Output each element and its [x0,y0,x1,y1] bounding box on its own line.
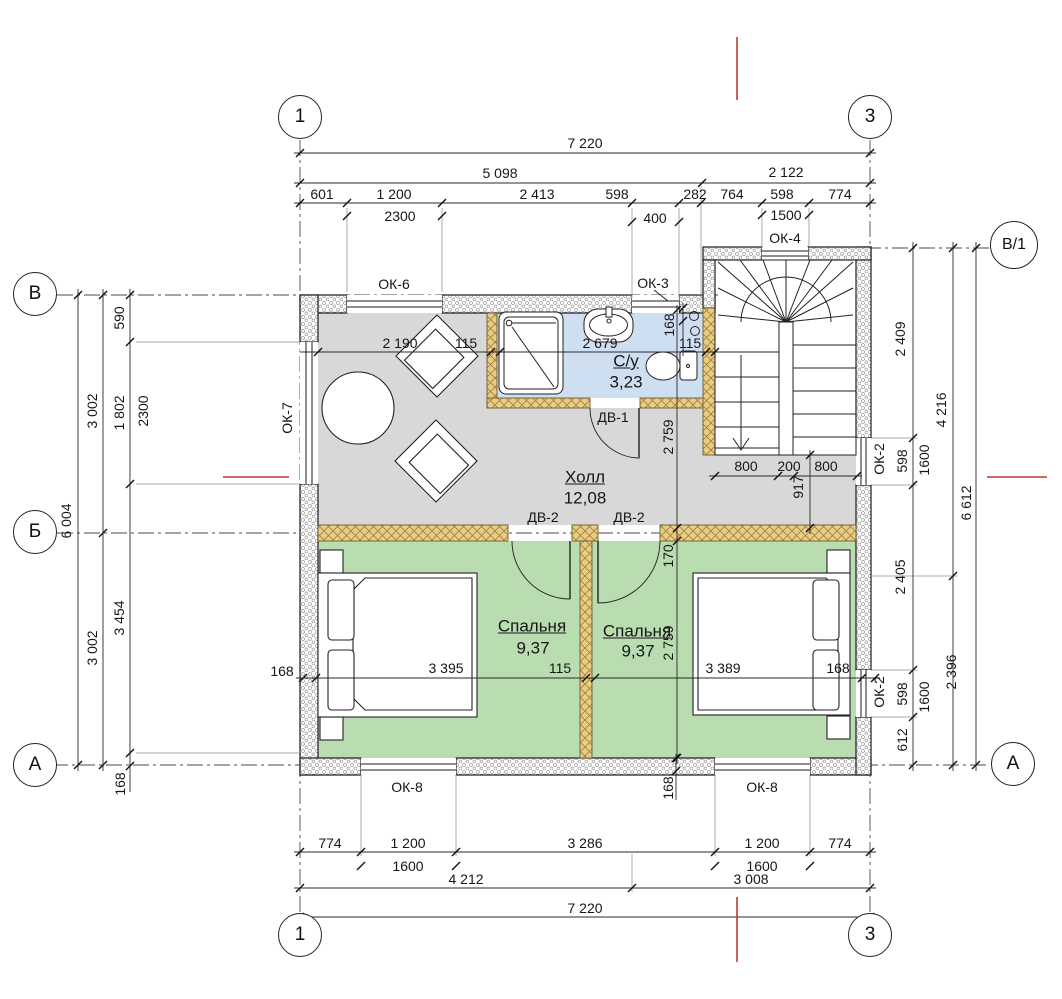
pillow [813,650,839,710]
door-tag-dv1: ДВ-1 [597,410,628,424]
stair-spine [779,322,793,455]
floor-plan-canvas: 7 2205 0982 1226011 2002 413598282764598… [0,0,1062,999]
axis-row-a-left: А [13,743,57,787]
dim-bottom-3286: 3 286 [567,836,602,850]
wall-stair-north [703,247,762,260]
dim-top-1200: 1 200 [376,187,411,201]
pillow [813,580,839,640]
room-area-bath: 3,23 [609,374,642,391]
wall-east [856,717,871,775]
window-ok3 [632,295,679,313]
door-tag-dv2-right: ДВ-2 [613,510,644,524]
axis-row-b: Б [13,510,57,554]
room-name-bath: С/у [613,353,639,370]
dim-right-1600b: 1600 [917,681,931,712]
axis-col-3-top: 3 [848,95,892,139]
dim-right-2396: 2 396 [944,654,958,689]
window-tag-ok8-right: ОК-8 [746,780,778,794]
dim-right-4216: 4 216 [934,392,948,427]
dim-int-115b: 115 [679,336,701,350]
wall-stair-west [703,260,715,308]
dim-top-598b: 598 [770,187,793,201]
dim-bottom-7220: 7 220 [567,901,602,915]
dim-int-3389: 3 389 [705,661,740,675]
dim-bottom-774a: 774 [318,836,341,850]
dim-left-1802: 1 802 [112,395,126,430]
dim-left-168: 168 [113,772,127,795]
partition-b-wall [660,525,856,541]
dim-top-2300: 2300 [384,209,415,223]
wall-west [300,484,318,775]
wall-east [856,485,871,670]
dim-right-612: 612 [895,728,909,751]
dim-int-168-bottom: 168 [661,776,675,799]
nightstand-icon [827,550,850,573]
window-ok8-left [361,758,456,775]
window-ok6 [347,295,442,313]
window-tag-ok6: ОК-6 [378,277,410,291]
dim-left-3454: 3 454 [112,600,126,635]
blanket [353,578,472,710]
dim-right-1600a: 1600 [917,444,931,475]
dim-int-800a: 800 [734,459,757,473]
dim-int-800b: 800 [814,459,837,473]
dim-int-168-left: 168 [270,664,293,678]
dim-int-115a: 115 [455,336,477,350]
room-area-bedroom-2: 9,37 [621,643,654,660]
pillow [328,650,354,710]
axis-col-3-bottom: 3 [848,913,892,957]
dim-top-400: 400 [643,211,666,225]
nightstand-icon [320,550,343,573]
axis-row-a-right: А [991,742,1035,786]
window-tag-ok4: ОК-4 [769,231,801,245]
dim-bottom-1600a: 1600 [392,859,423,873]
dim-top-5098: 5 098 [482,166,517,180]
partition-bath-west [487,313,497,408]
dim-int-168-right: 168 [826,661,849,675]
dim-top-1500: 1500 [770,208,801,222]
round-table-icon [322,372,394,444]
dim-top-2122: 2 122 [768,165,803,179]
dim-top-2413: 2 413 [519,187,554,201]
bed-icon-left [318,550,477,740]
dim-top-7220: 7 220 [567,136,602,150]
dim-int-3395: 3 395 [428,661,463,675]
dim-left-3002b: 3 002 [85,630,99,665]
axis-row-v1: В/1 [990,221,1038,269]
nightstand-icon [320,717,343,740]
pillow [328,580,354,640]
dim-int-2190: 2 190 [382,336,417,350]
partition-stair-west [703,308,715,455]
floor-plan-drawing [0,0,1062,999]
window-ok8-right [715,758,810,775]
dim-int-168a: 168 [662,313,676,336]
window-ok2-stair [856,438,871,485]
dim-top-282: 282 [683,187,706,201]
room-area-hall: 12,08 [564,490,607,507]
shower-icon [499,312,563,394]
dim-bottom-3008: 3 008 [733,872,768,886]
dim-top-598a: 598 [605,187,628,201]
dim-bottom-4212: 4 212 [448,872,483,886]
room-name-bedroom-1: Спальня [498,618,566,635]
window-tag-ok2-bedroom: ОК-2 [872,676,886,708]
dim-top-764: 764 [720,187,743,201]
dim-bottom-1200a: 1 200 [390,836,425,850]
partition-b-wall [318,525,508,541]
axis-col-1-top: 1 [278,95,322,139]
wall-stair-north [808,247,871,260]
dim-int-2759-hall: 2 759 [661,419,675,454]
dim-left-3002a: 3 002 [85,393,99,428]
room-area-bedroom-1: 9,37 [516,640,549,657]
dim-right-2405: 2 405 [893,559,907,594]
dim-top-601: 601 [310,187,333,201]
dim-int-200: 200 [777,459,800,473]
room-name-bedroom-2: Спальня [603,623,671,640]
wall-south [300,758,361,775]
axis-col-1-bottom: 1 [278,913,322,957]
dim-left-2300: 2300 [136,395,150,426]
dim-int-115c: 115 [549,661,571,675]
partition-bedrooms [580,541,592,758]
dim-bottom-774b: 774 [828,836,851,850]
dim-top-774: 774 [828,187,851,201]
dim-left-590: 590 [112,306,126,329]
dim-int-2679: 2 679 [582,336,617,350]
dim-right-6612: 6 612 [959,485,973,520]
window-tag-ok8-left: ОК-8 [391,780,423,794]
dim-right-598a: 598 [895,449,909,472]
window-ok4 [762,247,808,260]
axis-row-v: В [13,272,57,316]
window-tag-ok2-stair: ОК-2 [872,443,886,475]
door-tag-dv2-left: ДВ-2 [527,510,558,524]
dim-right-598b: 598 [895,682,909,705]
window-ok7 [300,342,318,484]
toilet-icon [646,351,697,380]
wall-east [856,247,871,438]
dim-left-6004: 6 004 [59,503,73,538]
partition-bath-south [487,398,590,408]
dim-bottom-1200b: 1 200 [744,836,779,850]
dim-int-917: 917 [791,475,805,498]
window-tag-ok3: ОК-3 [637,276,669,290]
room-name-hall: Холл [565,469,605,486]
dim-int-170: 170 [661,544,675,567]
partition-b-wall [572,525,598,541]
window-tag-ok7: ОК-7 [280,402,294,434]
nightstand-icon [827,716,850,739]
dim-right-2409: 2 409 [893,321,907,356]
bed-icon-right [693,550,850,739]
wall-west [300,295,318,342]
